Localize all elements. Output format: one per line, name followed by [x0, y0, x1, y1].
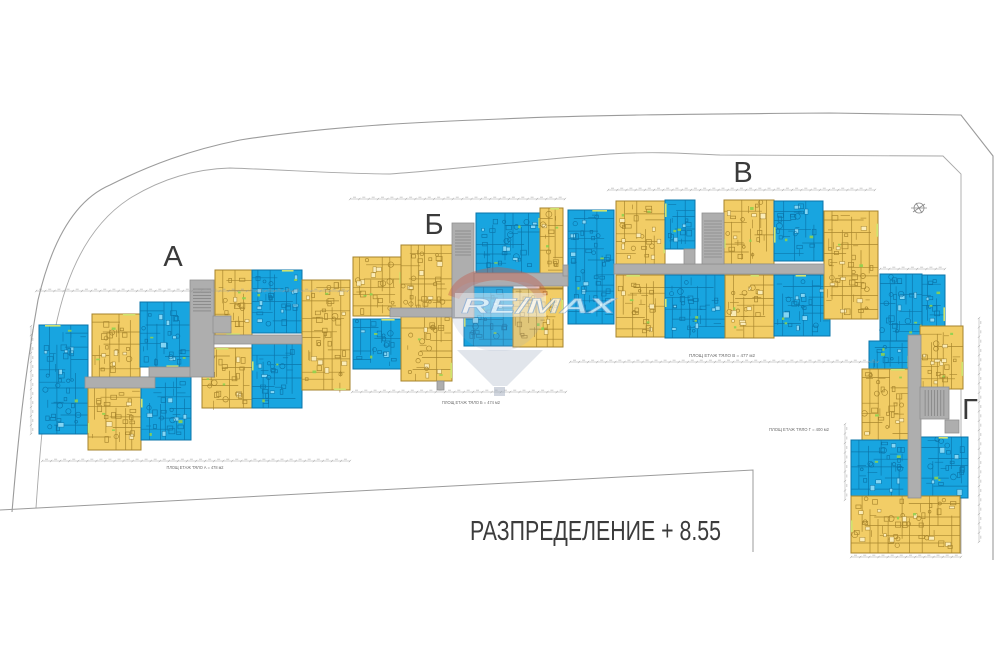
- svg-text:Г: Г: [962, 394, 978, 426]
- svg-text:ПЛОЩ ЕТАЖ ТЯЛО Г = 400 м2: ПЛОЩ ЕТАЖ ТЯЛО Г = 400 м2: [769, 427, 829, 432]
- svg-text:RE/MAX: RE/MAX: [461, 295, 619, 318]
- svg-text:Б: Б: [424, 209, 443, 241]
- svg-text:В: В: [733, 157, 752, 189]
- svg-text:ПЛОЩ ЕТАЖ ТЯЛО А = 478 м2: ПЛОЩ ЕТАЖ ТЯЛО А = 478 м2: [167, 465, 224, 470]
- svg-text:РАЗПРЕДЕЛЕНИЕ + 8.55: РАЗПРЕДЕЛЕНИЕ + 8.55: [470, 515, 721, 546]
- svg-text:А: А: [163, 241, 183, 273]
- svg-text:ПЛОЩ ЕТАЖ ТЯЛО Б = 474 м2: ПЛОЩ ЕТАЖ ТЯЛО Б = 474 м2: [442, 400, 500, 405]
- svg-text:ПЛОЩ ЕТАЖ ТЯЛО В = 477 м2: ПЛОЩ ЕТАЖ ТЯЛО В = 477 м2: [689, 353, 755, 358]
